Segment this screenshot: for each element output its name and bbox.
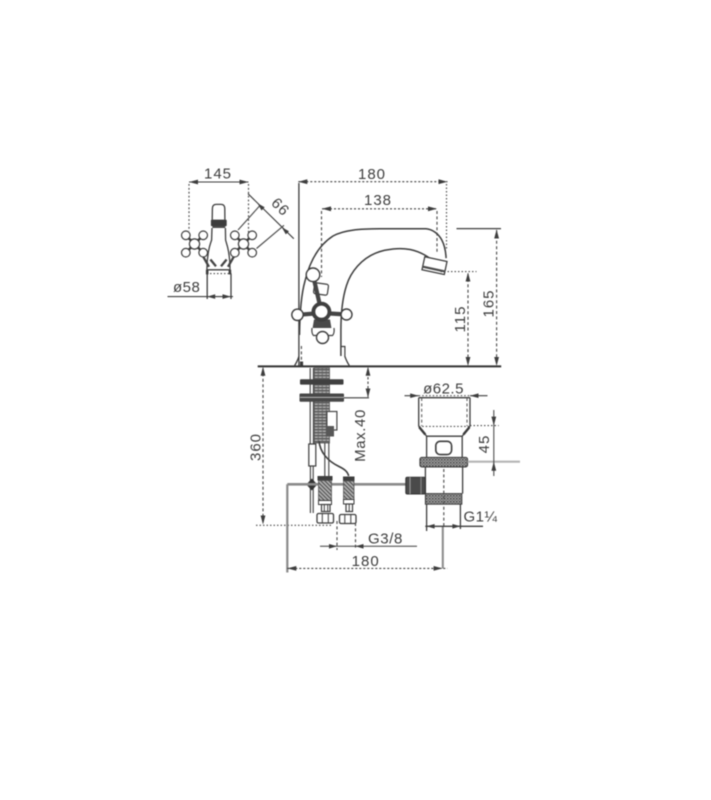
svg-text:138: 138 bbox=[364, 192, 392, 209]
svg-text:360: 360 bbox=[248, 433, 265, 461]
svg-text:ø62.5: ø62.5 bbox=[423, 381, 464, 398]
svg-text:Max.40: Max.40 bbox=[352, 409, 369, 462]
svg-text:165: 165 bbox=[481, 289, 498, 317]
svg-text:145: 145 bbox=[204, 166, 232, 183]
svg-text:G3/8: G3/8 bbox=[368, 531, 403, 548]
svg-text:G1¼: G1¼ bbox=[464, 509, 498, 526]
svg-text:180: 180 bbox=[358, 166, 386, 183]
svg-text:45: 45 bbox=[476, 435, 493, 454]
svg-text:180: 180 bbox=[352, 553, 380, 570]
svg-text:115: 115 bbox=[452, 306, 469, 333]
svg-text:ø58: ø58 bbox=[173, 279, 200, 296]
